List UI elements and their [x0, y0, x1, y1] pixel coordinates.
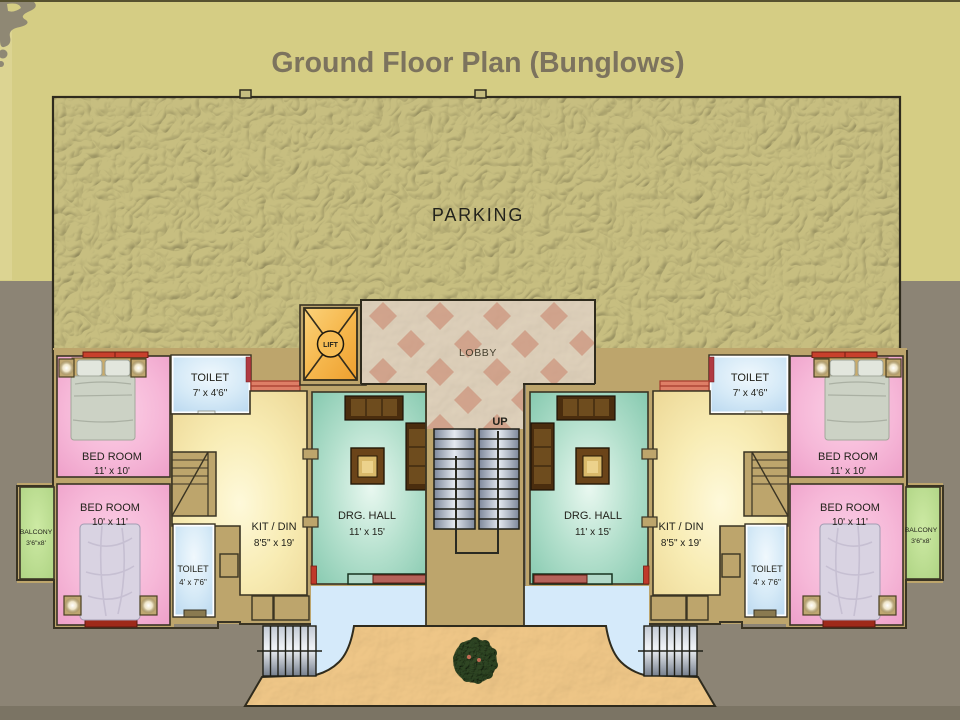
svg-text:Ground Floor Plan (Bunglows): Ground Floor Plan (Bunglows) [271, 47, 684, 79]
svg-text:4' x 7'6": 4' x 7'6" [179, 578, 207, 587]
svg-text:10' x 11': 10' x 11' [832, 517, 868, 528]
svg-text:8'5" x 19': 8'5" x 19' [254, 538, 294, 549]
svg-text:TOILET: TOILET [177, 564, 209, 574]
svg-text:TOILET: TOILET [751, 564, 783, 574]
svg-text:LIFT: LIFT [323, 342, 338, 349]
svg-text:BED ROOM: BED ROOM [80, 502, 140, 514]
svg-text:11' x 15': 11' x 15' [349, 527, 385, 538]
svg-text:LOBBY: LOBBY [459, 347, 497, 359]
svg-text:TOILET: TOILET [731, 372, 770, 384]
svg-text:DRG. HALL: DRG. HALL [338, 510, 396, 522]
svg-text:3'6"x8': 3'6"x8' [26, 540, 46, 547]
svg-text:11' x 10': 11' x 10' [830, 466, 866, 477]
svg-text:10' x 11': 10' x 11' [92, 517, 128, 528]
svg-text:BED ROOM: BED ROOM [820, 502, 880, 514]
svg-text:KIT / DIN: KIT / DIN [658, 521, 703, 533]
svg-text:DRG. HALL: DRG. HALL [564, 510, 622, 522]
svg-text:UP: UP [492, 416, 507, 428]
svg-text:BALCONY: BALCONY [905, 527, 938, 534]
svg-text:11' x 15': 11' x 15' [575, 527, 611, 538]
svg-text:11' x 10': 11' x 10' [94, 466, 130, 477]
svg-text:PARKING: PARKING [432, 205, 524, 225]
svg-text:TOILET: TOILET [191, 372, 230, 384]
svg-text:3'6"x8': 3'6"x8' [911, 538, 931, 545]
svg-text:BED ROOM: BED ROOM [818, 451, 878, 463]
svg-text:BALCONY: BALCONY [20, 529, 53, 536]
svg-text:KIT / DIN: KIT / DIN [251, 521, 296, 533]
svg-text:8'5" x 19': 8'5" x 19' [661, 538, 701, 549]
svg-text:BED ROOM: BED ROOM [82, 451, 142, 463]
svg-text:7' x 4'6": 7' x 4'6" [193, 388, 228, 399]
svg-text:4' x 7'6": 4' x 7'6" [753, 578, 781, 587]
svg-text:7' x 4'6": 7' x 4'6" [733, 388, 768, 399]
